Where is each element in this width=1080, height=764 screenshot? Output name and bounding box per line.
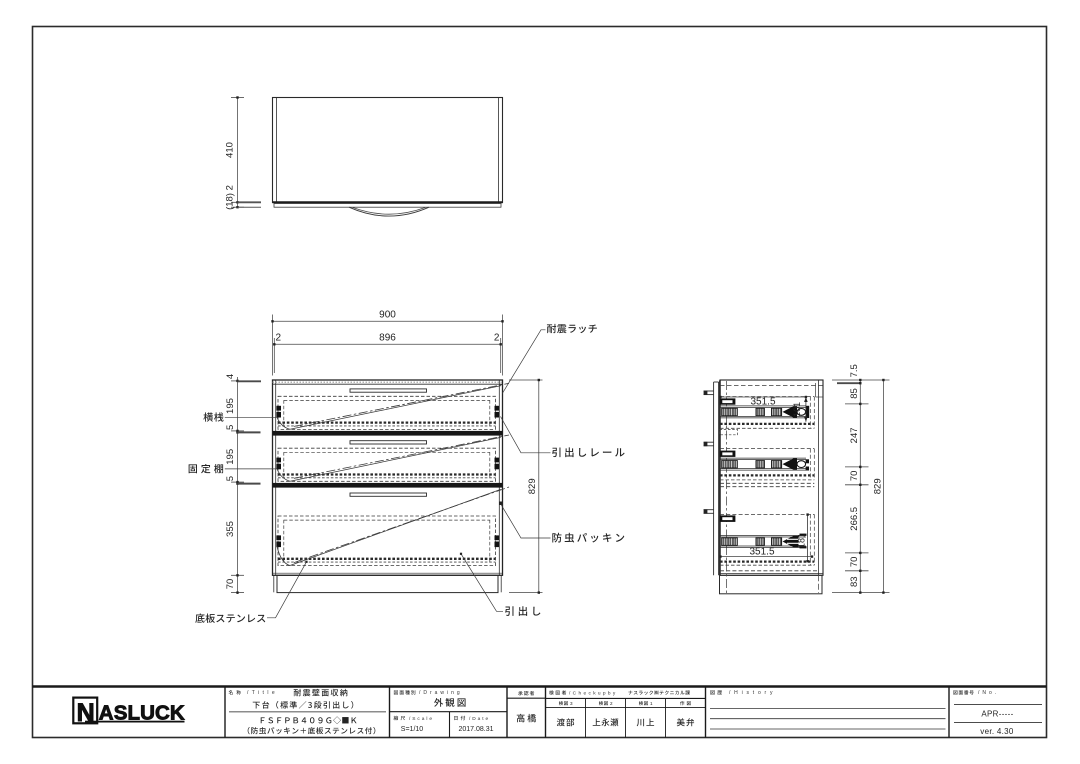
svg-text:195: 195 xyxy=(225,398,236,414)
svg-text:266.5: 266.5 xyxy=(849,507,860,531)
svg-text:4: 4 xyxy=(225,374,236,379)
svg-text:ver. 4.30: ver. 4.30 xyxy=(980,727,1014,736)
svg-text:/ H i s t o r y: / H i s t o r y xyxy=(729,690,774,696)
svg-text:2: 2 xyxy=(494,333,500,344)
svg-text:/ D r a w i n g: / D r a w i n g xyxy=(419,690,460,696)
svg-text:3: 3 xyxy=(570,701,573,706)
svg-text:181: 181 xyxy=(797,533,807,548)
svg-text:900: 900 xyxy=(379,310,396,321)
svg-text:70: 70 xyxy=(225,579,236,590)
svg-text:410: 410 xyxy=(225,142,236,158)
svg-text:101: 101 xyxy=(792,402,802,417)
svg-text:355: 355 xyxy=(225,521,236,537)
svg-text:85: 85 xyxy=(849,388,860,399)
svg-text:2017.08.31: 2017.08.31 xyxy=(458,726,493,733)
svg-text:896: 896 xyxy=(379,333,396,344)
svg-text:1: 1 xyxy=(650,701,653,706)
svg-text:7.5: 7.5 xyxy=(849,364,860,377)
svg-text:/ T i t l e: / T i t l e xyxy=(247,690,276,696)
svg-text:351.5: 351.5 xyxy=(750,397,775,408)
svg-text:/ C h e c k u p b y: / C h e c k u p b y xyxy=(569,690,616,696)
svg-text:829: 829 xyxy=(872,478,883,494)
svg-text:2: 2 xyxy=(276,333,282,344)
svg-text:(18) 2: (18) 2 xyxy=(225,185,236,210)
svg-text:N: N xyxy=(77,699,95,727)
svg-text:/ D a t e: / D a t e xyxy=(469,716,489,722)
svg-text:247: 247 xyxy=(849,427,860,443)
svg-text:APR-----: APR----- xyxy=(981,709,1013,718)
svg-text:/ S c a l e: / S c a l e xyxy=(409,716,432,722)
svg-text:195: 195 xyxy=(225,449,236,465)
svg-text:83: 83 xyxy=(849,576,860,587)
svg-text:70: 70 xyxy=(849,557,860,568)
svg-text:351.5: 351.5 xyxy=(749,547,774,558)
svg-text:5: 5 xyxy=(225,476,236,481)
svg-text:S=1/10: S=1/10 xyxy=(401,726,423,733)
svg-text:70: 70 xyxy=(849,471,860,482)
svg-text:829: 829 xyxy=(527,478,538,494)
svg-text:5: 5 xyxy=(225,425,236,430)
svg-text:2: 2 xyxy=(610,701,613,706)
svg-text:/ N o .: / N o . xyxy=(978,690,997,696)
